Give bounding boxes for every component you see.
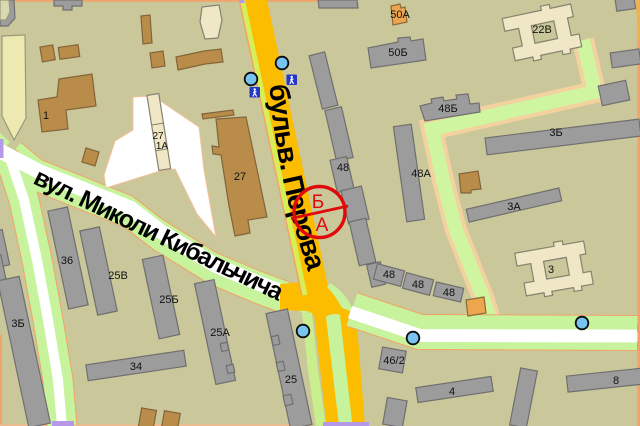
svg-text:48: 48: [337, 162, 349, 174]
svg-text:50Б: 50Б: [388, 47, 407, 59]
svg-text:1: 1: [43, 110, 49, 122]
svg-text:А: А: [316, 215, 329, 236]
svg-text:27: 27: [234, 171, 246, 183]
svg-text:3А: 3А: [507, 201, 521, 213]
svg-text:48: 48: [383, 269, 395, 281]
svg-text:48А: 48А: [411, 168, 431, 180]
svg-text:48: 48: [443, 287, 455, 299]
svg-text:3: 3: [548, 264, 554, 276]
svg-text:25В: 25В: [108, 270, 128, 282]
svg-text:8: 8: [613, 375, 619, 387]
svg-text:25: 25: [285, 374, 297, 386]
svg-text:1А: 1А: [156, 141, 169, 152]
svg-text:34: 34: [130, 361, 142, 373]
svg-text:50А: 50А: [390, 9, 410, 21]
svg-text:48Б: 48Б: [438, 103, 457, 115]
svg-text:25Б: 25Б: [159, 294, 178, 306]
svg-text:36: 36: [61, 255, 73, 267]
svg-text:3Б: 3Б: [11, 318, 24, 330]
svg-text:22В: 22В: [532, 24, 552, 36]
svg-text:46/2: 46/2: [383, 355, 404, 367]
svg-text:Б: Б: [312, 192, 324, 213]
svg-text:4: 4: [449, 386, 455, 398]
svg-text:48: 48: [412, 279, 424, 291]
svg-text:25А: 25А: [210, 327, 230, 339]
svg-text:3Б: 3Б: [549, 127, 562, 139]
